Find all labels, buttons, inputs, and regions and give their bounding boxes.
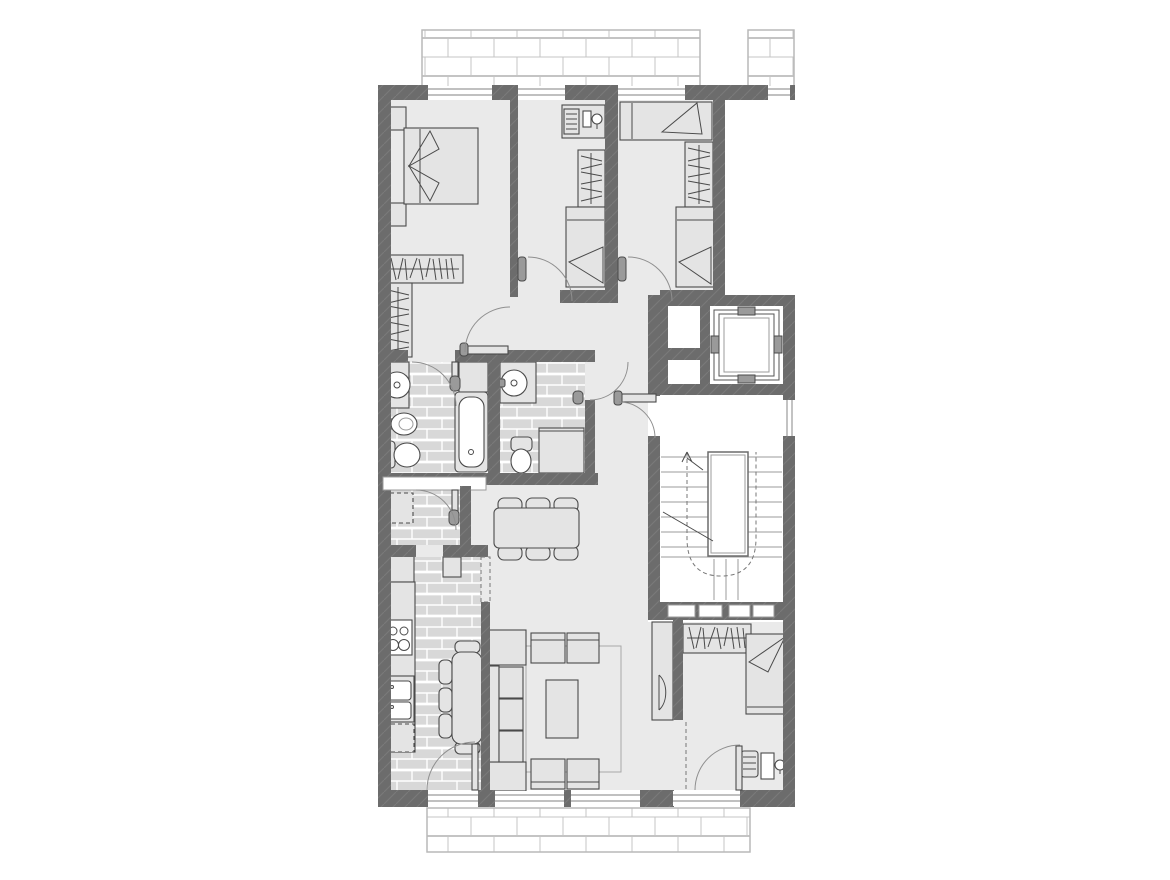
bathtub <box>455 392 488 472</box>
sofa <box>488 666 523 762</box>
tv-cabinet <box>652 622 673 720</box>
floor-plan <box>0 0 1170 880</box>
window <box>518 86 565 99</box>
dining-area <box>494 498 579 560</box>
dining-table <box>494 508 579 548</box>
armchair <box>531 759 565 789</box>
armchair <box>567 633 599 663</box>
floor-plan-canvas <box>0 0 1170 880</box>
side-table <box>488 762 526 791</box>
stair-well <box>708 452 748 556</box>
wardrobe <box>685 142 713 207</box>
landing-floor <box>660 390 783 437</box>
wardrobe <box>385 255 463 283</box>
desk-chair <box>564 109 579 134</box>
duct-column <box>443 557 461 577</box>
double-bed <box>404 128 478 204</box>
wardrobe <box>683 624 751 653</box>
balcony-south <box>427 808 750 852</box>
service-duct <box>668 306 700 384</box>
balcony-door-bedroom-4 <box>673 791 740 806</box>
balcony-glazing-living <box>495 790 640 807</box>
toilet <box>511 437 532 473</box>
window <box>618 86 685 99</box>
balcony-north <box>422 30 700 87</box>
landing-window <box>783 400 795 436</box>
wardrobe <box>578 150 605 207</box>
window <box>428 86 492 99</box>
chair <box>439 714 452 738</box>
single-bed <box>746 634 788 714</box>
armchair <box>531 633 565 663</box>
chair <box>439 688 452 712</box>
window <box>768 86 790 99</box>
west-wall <box>378 85 391 807</box>
chair <box>455 641 480 653</box>
chair <box>439 660 452 684</box>
desk-chair <box>741 751 758 777</box>
balcony-door-kitchen <box>428 791 478 806</box>
breakfast-table <box>452 652 482 744</box>
desk <box>761 753 774 779</box>
monitor <box>583 111 591 127</box>
shower <box>539 428 584 473</box>
side-table <box>488 630 526 665</box>
armchair <box>567 759 599 789</box>
balcony-north-east <box>748 30 794 87</box>
desk-lamp <box>592 114 602 124</box>
coffee-table <box>546 680 578 738</box>
bath-shelf <box>459 362 488 392</box>
single-bed <box>566 207 605 287</box>
